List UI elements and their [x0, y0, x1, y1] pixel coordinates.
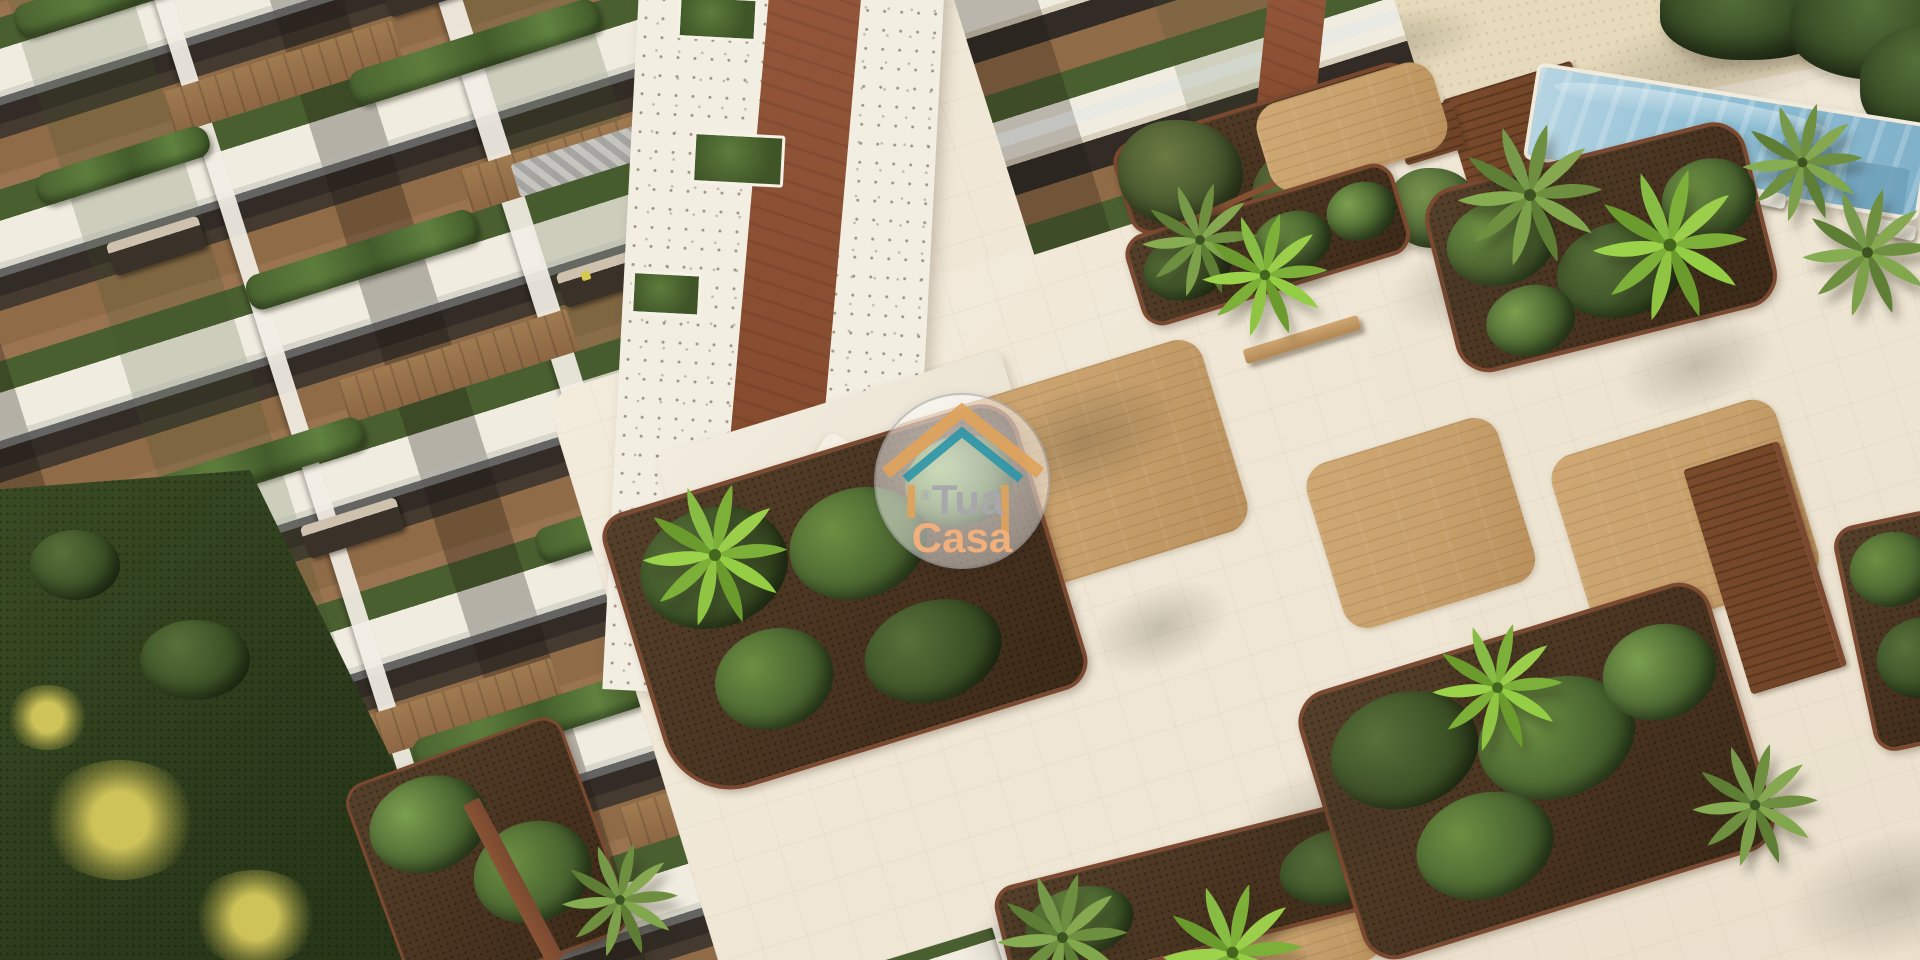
shrub: [852, 583, 1015, 720]
shrub: [1319, 173, 1403, 249]
registered-symbol: ®: [921, 487, 931, 503]
shrub: [140, 620, 250, 700]
shrub: [1869, 609, 1920, 706]
shrub: [702, 613, 846, 744]
palm-tree: [1430, 620, 1565, 755]
facade-planter: [691, 131, 786, 188]
render-scene: ®Tua Casa: [0, 0, 1920, 960]
balcony-hedge: [10, 0, 249, 40]
palm-tree: [995, 870, 1130, 960]
facade-planter: [630, 270, 702, 318]
shrub: [30, 530, 120, 600]
balcony-hedge: [242, 206, 482, 313]
palm-tree: [1160, 880, 1305, 960]
terrace-deck: [337, 309, 579, 423]
facade-planter: [676, 0, 758, 42]
watermark-line2: Casa: [876, 517, 1048, 559]
palm-tree: [1455, 120, 1605, 270]
palm-tree: [640, 480, 790, 630]
brand-watermark: ®Tua Casa: [874, 393, 1050, 569]
palm-tree: [560, 840, 680, 960]
palm-tree: [1590, 165, 1750, 325]
shrub: [1843, 524, 1920, 615]
terrace-sofa: [380, 0, 496, 18]
balcony-hedge: [32, 123, 213, 208]
flowering-shrub: [5, 685, 90, 750]
terrace-sofa: [106, 215, 208, 276]
palm-tree: [1200, 210, 1330, 340]
palm-tree: [1690, 740, 1820, 870]
flowering-shrub: [40, 760, 200, 880]
flowering-shrub: [190, 870, 320, 960]
palm-tree: [1800, 185, 1920, 320]
